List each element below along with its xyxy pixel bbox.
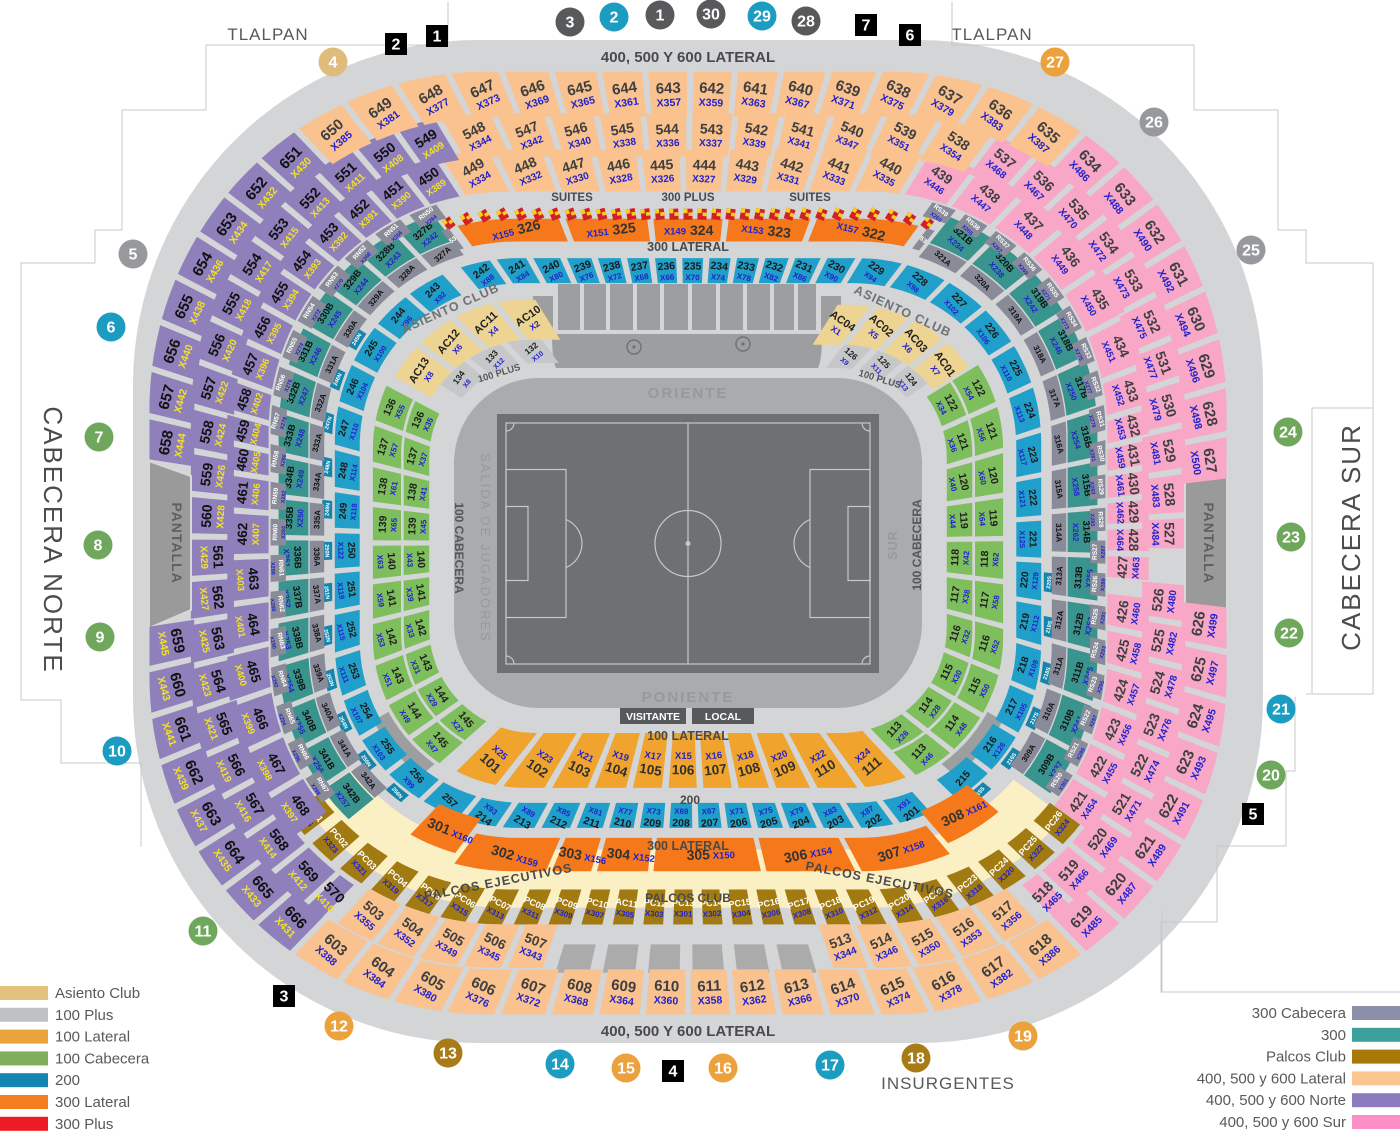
svg-text:313A: 313A [1054, 566, 1065, 586]
svg-text:22: 22 [1280, 626, 1298, 643]
svg-text:100 CABECERA: 100 CABECERA [452, 502, 466, 594]
svg-text:562: 562 [209, 585, 228, 610]
svg-text:TLALPAN: TLALPAN [951, 25, 1032, 44]
svg-text:324: 324 [690, 222, 714, 238]
svg-text:235: 235 [684, 260, 702, 272]
svg-text:PANTALLA: PANTALLA [1201, 502, 1217, 583]
svg-text:528: 528 [1160, 482, 1178, 507]
svg-text:559: 559 [197, 462, 216, 488]
svg-text:CABECERA NORTE: CABECERA NORTE [38, 406, 68, 673]
svg-text:X301: X301 [674, 909, 693, 918]
svg-text:139: 139 [377, 515, 390, 533]
svg-text:X463: X463 [1130, 557, 1142, 580]
svg-text:Palcos Club: Palcos Club [1266, 1049, 1346, 1066]
svg-text:643: 643 [655, 80, 681, 98]
svg-text:6: 6 [107, 320, 116, 337]
svg-text:LOCAL: LOCAL [705, 711, 742, 723]
svg-text:INSURGENTES: INSURGENTES [881, 1074, 1015, 1093]
svg-text:X44: X44 [947, 514, 957, 529]
svg-text:X357: X357 [656, 97, 681, 110]
svg-text:23: 23 [1282, 530, 1300, 547]
svg-text:30: 30 [702, 7, 720, 24]
svg-text:X337: X337 [699, 138, 723, 150]
svg-text:1: 1 [656, 8, 665, 25]
svg-text:X70: X70 [685, 273, 700, 282]
svg-text:1: 1 [433, 29, 442, 46]
svg-text:X250: X250 [295, 508, 305, 528]
svg-text:3: 3 [280, 989, 289, 1006]
svg-text:400, 500 y 600 Sur: 400, 500 y 600 Sur [1219, 1114, 1346, 1131]
svg-text:Asiento Club: Asiento Club [55, 985, 140, 1002]
svg-text:PONIENTE: PONIENTE [642, 689, 735, 706]
svg-text:444: 444 [692, 156, 716, 173]
svg-text:314A: 314A [1054, 523, 1064, 543]
svg-text:119: 119 [986, 509, 999, 527]
svg-text:SUITES: SUITES [551, 192, 593, 204]
svg-text:TLALPAN: TLALPAN [227, 25, 308, 44]
svg-text:X43: X43 [405, 553, 415, 568]
svg-text:RS27: RS27 [1092, 543, 1099, 560]
svg-text:336B: 336B [291, 546, 303, 569]
svg-text:SUR: SUR [886, 530, 900, 559]
svg-text:300: 300 [1321, 1027, 1346, 1044]
svg-text:140: 140 [414, 550, 427, 568]
svg-text:9: 9 [96, 630, 105, 647]
svg-text:400, 500 y 600 Lateral: 400, 500 y 600 Lateral [1197, 1070, 1346, 1087]
svg-text:X462: X462 [1113, 501, 1126, 524]
svg-text:PALCOS CLUB: PALCOS CLUB [645, 891, 731, 905]
svg-text:400, 500 Y 600 LATERAL: 400, 500 Y 600 LATERAL [601, 1023, 775, 1040]
svg-text:300 LATERAL: 300 LATERAL [647, 839, 729, 853]
svg-text:543: 543 [699, 120, 723, 137]
svg-text:561: 561 [210, 545, 227, 569]
svg-text:428: 428 [1126, 529, 1141, 552]
svg-text:427: 427 [1114, 556, 1130, 579]
svg-text:527: 527 [1161, 522, 1177, 546]
svg-text:X73: X73 [646, 806, 662, 817]
svg-text:107: 107 [703, 761, 727, 779]
svg-text:430: 430 [1125, 472, 1143, 496]
svg-text:325: 325 [611, 219, 636, 238]
svg-text:X284: X284 [281, 525, 287, 539]
svg-text:X403: X403 [233, 568, 246, 591]
svg-text:118: 118 [949, 549, 962, 567]
svg-text:249N: 249N [325, 503, 332, 517]
svg-text:X358: X358 [697, 994, 722, 1007]
svg-text:X262: X262 [1071, 523, 1081, 542]
svg-text:X125: X125 [1018, 530, 1027, 548]
svg-text:3: 3 [566, 15, 575, 32]
svg-text:X42: X42 [962, 550, 972, 565]
svg-text:X118: X118 [349, 503, 360, 521]
svg-text:323: 323 [767, 222, 792, 241]
svg-text:X149: X149 [664, 227, 686, 238]
svg-text:CABECERA SUR: CABECERA SUR [1336, 423, 1366, 651]
svg-text:300 PLUS: 300 PLUS [661, 192, 714, 204]
svg-text:28: 28 [797, 14, 815, 31]
svg-text:7: 7 [95, 430, 104, 447]
svg-text:610: 610 [654, 977, 680, 995]
svg-text:X484: X484 [1149, 522, 1160, 546]
svg-text:5: 5 [129, 247, 138, 264]
svg-text:207: 207 [701, 817, 720, 830]
svg-text:461: 461 [234, 480, 251, 505]
svg-text:139: 139 [406, 517, 419, 535]
svg-text:100 CABECERA: 100 CABECERA [910, 499, 924, 591]
svg-text:X327: X327 [692, 174, 716, 186]
svg-text:X464: X464 [1114, 529, 1125, 552]
svg-text:14: 14 [551, 1057, 569, 1074]
svg-text:208: 208 [672, 817, 690, 829]
svg-text:462: 462 [235, 523, 250, 546]
svg-text:X129: X129 [1030, 572, 1041, 590]
svg-text:611: 611 [697, 977, 722, 995]
svg-text:4: 4 [329, 55, 338, 72]
svg-text:X285: X285 [1088, 513, 1095, 526]
svg-text:336A: 336A [312, 547, 322, 567]
svg-text:VISITANTE: VISITANTE [626, 711, 680, 723]
svg-text:26: 26 [1145, 115, 1163, 132]
svg-text:X429: X429 [198, 546, 210, 570]
svg-text:17: 17 [821, 1058, 839, 1075]
svg-text:RS28: RS28 [1096, 511, 1104, 528]
svg-text:7: 7 [862, 18, 871, 35]
svg-text:24: 24 [1279, 425, 1297, 442]
svg-text:100 LATERAL: 100 LATERAL [647, 729, 729, 743]
svg-text:X359: X359 [698, 96, 723, 109]
svg-text:X45: X45 [419, 519, 429, 534]
svg-text:X15: X15 [675, 751, 693, 762]
svg-text:PANTALLA: PANTALLA [169, 502, 185, 583]
svg-text:100 Plus: 100 Plus [55, 1007, 113, 1024]
svg-text:X287: X287 [1101, 546, 1107, 559]
svg-text:119: 119 [957, 511, 970, 529]
svg-text:X64: X64 [977, 511, 987, 526]
svg-text:200: 200 [680, 793, 700, 807]
svg-text:11: 11 [195, 924, 212, 941]
svg-text:X62: X62 [991, 552, 1001, 567]
svg-text:8: 8 [94, 538, 103, 555]
svg-text:16: 16 [714, 1061, 732, 1078]
svg-text:18: 18 [907, 1051, 925, 1068]
svg-text:100 Cabecera: 100 Cabecera [55, 1050, 150, 1067]
svg-text:RN61: RN61 [277, 559, 285, 576]
svg-text:19: 19 [1014, 1029, 1032, 1046]
svg-text:300 Cabecera: 300 Cabecera [1252, 1005, 1347, 1022]
svg-text:2: 2 [392, 37, 401, 54]
svg-text:544: 544 [655, 120, 679, 137]
svg-text:SALIDA DE JUGADORES: SALIDA DE JUGADORES [478, 453, 493, 643]
svg-text:236: 236 [657, 260, 676, 273]
svg-text:X65: X65 [389, 517, 399, 532]
svg-text:642: 642 [699, 79, 725, 97]
svg-text:2: 2 [610, 10, 619, 27]
svg-text:526: 526 [1148, 587, 1167, 612]
svg-text:300 Lateral: 300 Lateral [55, 1094, 130, 1111]
svg-text:ORIENTE: ORIENTE [648, 385, 729, 402]
svg-text:445: 445 [649, 156, 674, 174]
svg-text:300 Plus: 300 Plus [55, 1116, 113, 1132]
svg-text:21: 21 [1272, 702, 1290, 719]
svg-text:300 LATERAL: 300 LATERAL [647, 240, 729, 254]
svg-text:200: 200 [55, 1072, 80, 1089]
svg-text:X74: X74 [710, 272, 726, 283]
svg-text:X326: X326 [651, 173, 676, 186]
svg-text:X302: X302 [702, 909, 722, 919]
svg-text:X122: X122 [336, 542, 345, 560]
svg-text:6: 6 [906, 28, 915, 45]
svg-text:10: 10 [108, 744, 126, 761]
svg-text:400, 500 Y 600 LATERAL: 400, 500 Y 600 LATERAL [601, 49, 775, 66]
svg-text:X286: X286 [269, 562, 276, 575]
svg-text:X428: X428 [215, 505, 227, 529]
svg-text:335A: 335A [312, 509, 322, 529]
svg-text:100 Lateral: 100 Lateral [55, 1029, 130, 1046]
svg-text:SUITES: SUITES [789, 192, 831, 204]
svg-text:X66: X66 [660, 272, 675, 282]
svg-text:5: 5 [1249, 807, 1258, 824]
svg-text:X336: X336 [656, 138, 680, 150]
svg-text:429: 429 [1125, 500, 1142, 524]
svg-text:25: 25 [1242, 243, 1260, 260]
svg-text:X360: X360 [653, 994, 678, 1007]
svg-text:221: 221 [1027, 531, 1038, 548]
svg-text:12: 12 [330, 1019, 348, 1036]
svg-text:X303: X303 [644, 909, 664, 920]
svg-text:15: 15 [617, 1061, 635, 1078]
svg-text:304: 304 [606, 844, 631, 862]
svg-text:13: 13 [439, 1046, 457, 1063]
svg-text:X67: X67 [701, 806, 716, 816]
svg-text:463: 463 [245, 567, 262, 591]
svg-text:RN60: RN60 [272, 523, 279, 540]
svg-text:140: 140 [385, 552, 398, 570]
svg-text:27: 27 [1046, 55, 1064, 72]
svg-text:118: 118 [978, 550, 991, 568]
svg-text:250: 250 [345, 542, 356, 559]
svg-text:X63: X63 [375, 554, 385, 569]
svg-text:209: 209 [643, 816, 662, 830]
svg-text:X69: X69 [674, 807, 689, 816]
svg-text:106: 106 [672, 762, 695, 777]
svg-text:29: 29 [753, 9, 771, 26]
svg-text:20: 20 [1262, 768, 1280, 785]
svg-text:4: 4 [669, 1064, 678, 1081]
svg-text:560: 560 [198, 504, 215, 528]
svg-text:400, 500 y 600 Norte: 400, 500 y 600 Norte [1206, 1092, 1346, 1109]
svg-text:X407: X407 [251, 523, 262, 545]
